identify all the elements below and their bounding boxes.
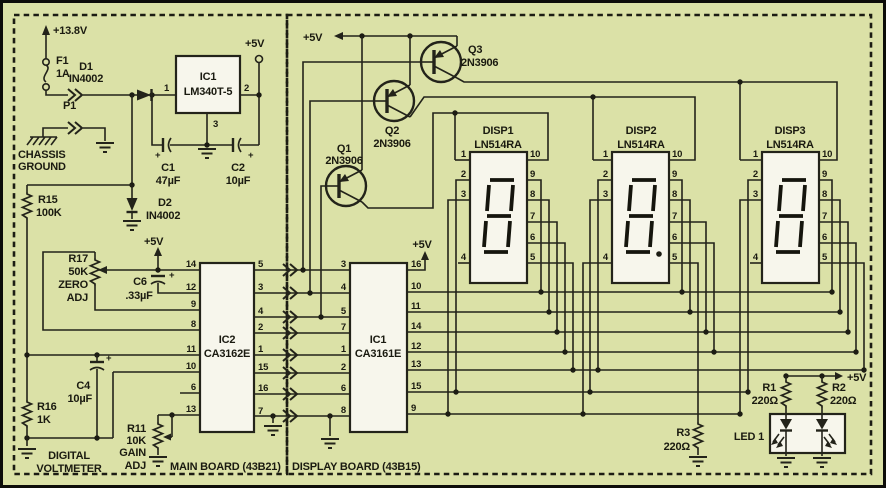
c6-value: .33µF bbox=[125, 290, 153, 302]
r1-ref: R1 bbox=[762, 382, 776, 394]
disp1-value: LN514RA bbox=[474, 139, 522, 151]
ic2-pin-label: 10 bbox=[186, 361, 196, 372]
q2-value: 2N3906 bbox=[373, 138, 410, 150]
chassis-label-2: GROUND bbox=[18, 161, 66, 173]
disp-pin-label: 3 bbox=[461, 189, 466, 200]
disp-pin-label: 2 bbox=[603, 169, 608, 180]
ic2-pin-label: 6 bbox=[191, 382, 196, 393]
reg-ref: IC1 bbox=[200, 71, 217, 83]
disp-pin-label: 6 bbox=[530, 232, 535, 243]
ic2-pin-label: 3 bbox=[258, 282, 263, 293]
r16-ref: R16 bbox=[37, 401, 57, 413]
led1-ref: LED 1 bbox=[734, 431, 764, 443]
disp-pin-label: 6 bbox=[822, 232, 827, 243]
v5-led-label: +5V bbox=[847, 372, 867, 384]
q2-ref: Q2 bbox=[385, 125, 399, 137]
r11-func2: ADJ bbox=[125, 460, 146, 472]
disp-pin-label: 8 bbox=[822, 189, 827, 200]
v5-ic1-label: +5V bbox=[412, 239, 432, 251]
q1-ref: Q1 bbox=[337, 143, 351, 155]
d1-value: IN4002 bbox=[69, 73, 103, 85]
r15-value: 100K bbox=[36, 207, 62, 219]
reg-value: LM340T-5 bbox=[184, 86, 233, 98]
d2-ref: D2 bbox=[158, 197, 172, 209]
regulator-ic1-body bbox=[176, 56, 240, 113]
ic1-pin-label: 9 bbox=[411, 403, 416, 414]
ic1-pin-label: 10 bbox=[411, 281, 421, 292]
disp-pin-label: 2 bbox=[753, 169, 758, 180]
c6-ref: C6 bbox=[133, 276, 147, 288]
r17-ref: R17 bbox=[68, 253, 88, 265]
decimal-point bbox=[656, 251, 662, 257]
ic2-pin-label: 15 bbox=[258, 362, 269, 373]
disp-pin-label: 9 bbox=[822, 169, 827, 180]
r15-ref: R15 bbox=[38, 194, 58, 206]
ic2-pin-label: 16 bbox=[258, 383, 268, 394]
disp1-ref: DISP1 bbox=[483, 125, 514, 137]
disp-pin-label: 9 bbox=[672, 169, 677, 180]
c6-polarity: + bbox=[169, 270, 175, 281]
ic1-pin-label: 6 bbox=[341, 383, 346, 394]
disp2-value: LN514RA bbox=[617, 139, 665, 151]
r3-ref: R3 bbox=[676, 427, 690, 439]
v5-top-label: +5V bbox=[245, 38, 265, 50]
vin-label: +13.8V bbox=[53, 25, 88, 37]
ic2-ref: IC2 bbox=[219, 334, 236, 346]
ic1-ref: IC1 bbox=[370, 334, 387, 346]
q3-value: 2N3906 bbox=[461, 57, 498, 69]
ic1-pin-label: 16 bbox=[411, 259, 421, 270]
disp-pin-label: 6 bbox=[672, 232, 677, 243]
ic1-pin-label: 12 bbox=[411, 341, 421, 352]
title-line1: DIGITAL bbox=[48, 450, 90, 462]
disp-pin-label: 10 bbox=[530, 149, 540, 160]
r2-value: 220Ω bbox=[830, 395, 857, 407]
voltmeter-schematic: +13.8V F1 1A P1 CHASSIS GROUND D1 IN4002… bbox=[0, 0, 886, 488]
ic2-pin-label: 2 bbox=[258, 322, 263, 333]
c2-polarity: + bbox=[248, 150, 254, 161]
ic1-pin-label: 7 bbox=[341, 322, 346, 333]
d1-ref: D1 bbox=[79, 61, 93, 73]
disp-pin-label: 10 bbox=[672, 149, 682, 160]
disp-pin-label: 9 bbox=[530, 169, 535, 180]
ic2-pin-label: 14 bbox=[186, 259, 197, 270]
r11-func1: GAIN bbox=[119, 447, 146, 459]
c2-value: 10µF bbox=[226, 175, 251, 187]
title-line2: VOLTMETER bbox=[36, 463, 101, 475]
ic2-pin-label: 9 bbox=[191, 299, 196, 310]
f1-ref: F1 bbox=[56, 55, 69, 67]
c2-ref: C2 bbox=[231, 162, 245, 174]
disp-pin-label: 8 bbox=[530, 189, 535, 200]
ic2-pin-label: 8 bbox=[191, 319, 196, 330]
d2-value: IN4002 bbox=[146, 210, 180, 222]
ic1-pin-label: 11 bbox=[411, 301, 422, 312]
c4-ref: C4 bbox=[76, 380, 91, 392]
c4-polarity: + bbox=[106, 353, 112, 364]
reg-pin3: 3 bbox=[213, 119, 218, 130]
c4-value: 10µF bbox=[68, 393, 93, 405]
q3-ref: Q3 bbox=[468, 44, 482, 56]
main-board-label: MAIN BOARD (43B21) bbox=[170, 461, 281, 473]
v5-disp-label: +5V bbox=[303, 32, 323, 44]
ic1-pin-label: 8 bbox=[341, 405, 346, 416]
disp-pin-label: 8 bbox=[672, 189, 677, 200]
r2-ref: R2 bbox=[832, 382, 846, 394]
r17-func2: ADJ bbox=[67, 292, 88, 304]
c1-value: 47µF bbox=[156, 175, 181, 187]
ic1-pin-label: 2 bbox=[341, 362, 346, 373]
disp-pin-label: 3 bbox=[603, 189, 608, 200]
ic1-pin-label: 3 bbox=[341, 259, 346, 270]
c1-ref: C1 bbox=[161, 162, 175, 174]
disp-pin-label: 3 bbox=[753, 189, 758, 200]
r11-ref: R11 bbox=[127, 423, 146, 435]
disp2-ref: DISP2 bbox=[626, 125, 657, 137]
disp-pin-label: 7 bbox=[822, 211, 827, 222]
disp-pin-label: 7 bbox=[530, 211, 535, 222]
disp-pin-label: 2 bbox=[461, 169, 466, 180]
ic1-pin-label: 14 bbox=[411, 321, 422, 332]
disp-pin-label: 10 bbox=[822, 149, 832, 160]
r1-value: 220Ω bbox=[752, 395, 779, 407]
q1-value: 2N3906 bbox=[325, 155, 362, 167]
ic2-pin-label: 12 bbox=[186, 282, 196, 293]
f1-value: 1A bbox=[56, 68, 70, 80]
v5-mid-label: +5V bbox=[144, 236, 164, 248]
p1-ref: P1 bbox=[63, 100, 76, 112]
r17-func1: ZERO bbox=[58, 279, 88, 291]
c1-polarity: + bbox=[155, 150, 161, 161]
ic1-pin-label: 15 bbox=[411, 381, 422, 392]
r16-value: 1K bbox=[37, 414, 51, 426]
r3-value: 220Ω bbox=[664, 441, 691, 453]
ic1-value: CA3161E bbox=[355, 348, 401, 360]
disp3-ref: DISP3 bbox=[775, 125, 806, 137]
disp-pin-label: 7 bbox=[672, 211, 677, 222]
r11-value: 10K bbox=[126, 435, 146, 447]
reg-pin2: 2 bbox=[244, 83, 249, 94]
display-board-label: DISPLAY BOARD (43B15) bbox=[292, 461, 421, 473]
schematic-page: +13.8V F1 1A P1 CHASSIS GROUND D1 IN4002… bbox=[0, 0, 886, 488]
r17-value: 50K bbox=[68, 266, 88, 278]
disp3-value: LN514RA bbox=[766, 139, 814, 151]
ic2-pin-label: 11 bbox=[186, 344, 197, 355]
ic2-pin-label: 13 bbox=[186, 404, 196, 415]
ic1-pin-label: 13 bbox=[411, 359, 421, 370]
ic2-value: CA3162E bbox=[204, 348, 250, 360]
chassis-label-1: CHASSIS bbox=[18, 149, 66, 161]
